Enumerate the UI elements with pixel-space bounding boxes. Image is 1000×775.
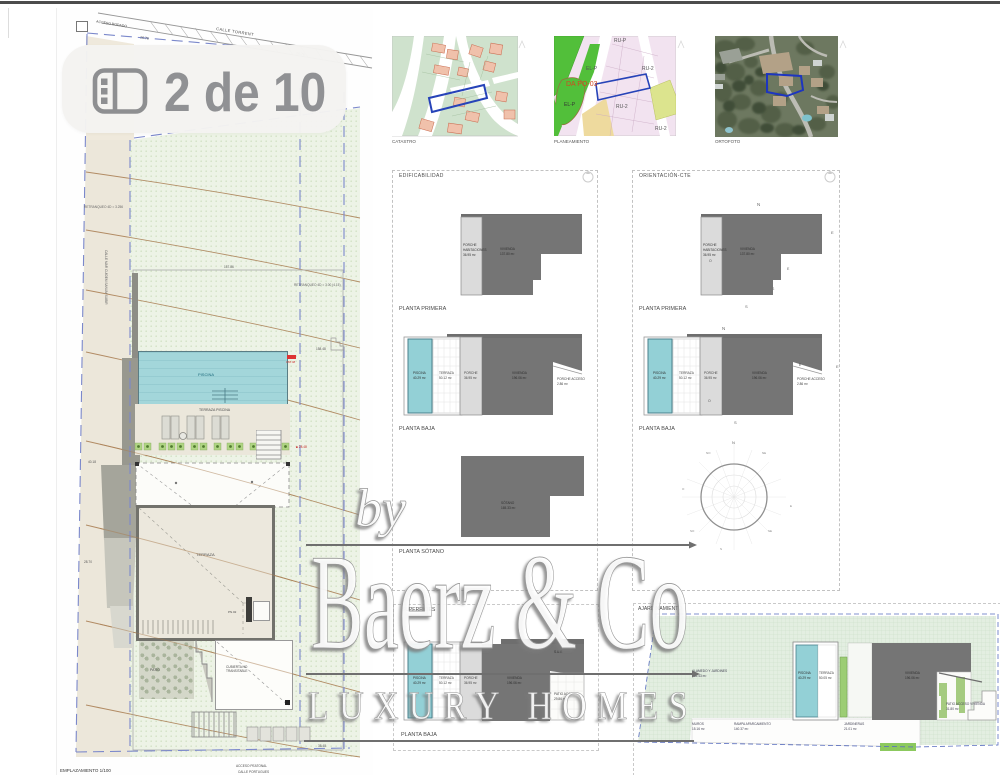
svg-text:S: S — [720, 547, 722, 551]
svg-text:PISCINA: PISCINA — [413, 371, 427, 375]
svg-text:TERRAZA: TERRAZA — [679, 371, 695, 375]
svg-text:PISCINA: PISCINA — [413, 676, 427, 680]
svg-text:SE: SE — [768, 529, 772, 533]
svg-text:NE: NE — [762, 451, 766, 455]
svg-text:JARDINERAS: JARDINERAS — [844, 722, 864, 726]
svg-text:40.29 m²: 40.29 m² — [413, 376, 426, 380]
svg-text:137.80 m²: 137.80 m² — [740, 252, 754, 256]
svg-text:PORCHE: PORCHE — [464, 676, 478, 680]
svg-text:VIVIENDA: VIVIENDA — [507, 676, 523, 680]
svg-text:15.16 m²: 15.16 m² — [692, 727, 705, 731]
svg-text:MUROS: MUROS — [692, 722, 704, 726]
svg-text:196.06 m²: 196.06 m² — [512, 376, 526, 380]
svg-text:29.86 m²: 29.86 m² — [554, 697, 567, 701]
svg-text:E: E — [836, 364, 839, 369]
svg-text:PISCINA: PISCINA — [653, 371, 667, 375]
svg-text:40.29 m²: 40.29 m² — [413, 681, 426, 685]
svg-text:36.95 m²: 36.95 m² — [703, 253, 716, 257]
svg-text:E: E — [790, 504, 792, 508]
svg-text:PORCHE: PORCHE — [463, 243, 477, 247]
svg-text:PORCHE ACCESO: PORCHE ACCESO — [797, 377, 825, 381]
svg-text:RAMPA APARCAMIENTO: RAMPA APARCAMIENTO — [734, 722, 771, 726]
svg-text:50.12 m²: 50.12 m² — [439, 681, 452, 685]
svg-text:40.29 m²: 40.29 m² — [798, 676, 811, 680]
svg-text:TERRAZA: TERRAZA — [439, 676, 455, 680]
svg-text:196.06 m²: 196.06 m² — [507, 681, 521, 685]
svg-text:S.U.E: S.U.E — [554, 650, 562, 654]
svg-text:137.80 m²: 137.80 m² — [500, 252, 514, 256]
svg-text:O: O — [709, 259, 712, 263]
svg-text:VIVIENDA: VIVIENDA — [905, 671, 921, 675]
svg-text:2.86 m²: 2.86 m² — [797, 382, 808, 386]
svg-text:O: O — [708, 399, 711, 403]
svg-text:36.95 m²: 36.95 m² — [704, 376, 717, 380]
svg-text:TERRAZA: TERRAZA — [819, 671, 835, 675]
svg-text:EL-P: EL-P — [586, 66, 598, 72]
svg-text:N: N — [757, 202, 760, 207]
svg-text:DA PO-03: DA PO-03 — [566, 81, 598, 88]
svg-text:50.12 m²: 50.12 m² — [679, 376, 692, 380]
svg-text:PATIO ACCESO VIVIENDA: PATIO ACCESO VIVIENDA — [946, 702, 986, 706]
svg-text:21.01 m²: 21.01 m² — [844, 727, 857, 731]
svg-text:VIVIENDA: VIVIENDA — [512, 371, 528, 375]
svg-text:36.95 m²: 36.95 m² — [464, 681, 477, 685]
svg-text:RU-P: RU-P — [614, 38, 627, 44]
svg-text:N: N — [722, 326, 725, 331]
svg-text:RU-2: RU-2 — [655, 126, 667, 132]
svg-text:140.37 m²: 140.37 m² — [734, 727, 748, 731]
svg-text:O: O — [682, 487, 685, 491]
svg-text:HABITACIONES: HABITACIONES — [703, 248, 727, 252]
svg-text:PISCINA: PISCINA — [798, 671, 812, 675]
svg-text:40.29 m²: 40.29 m² — [653, 376, 666, 380]
svg-text:36.95 m²: 36.95 m² — [463, 253, 476, 257]
svg-text:2.86 m²: 2.86 m² — [557, 382, 568, 386]
svg-text:31.80 m²: 31.80 m² — [946, 707, 959, 711]
svg-text:196.06 m²: 196.06 m² — [752, 376, 766, 380]
svg-text:SÓTANO: SÓTANO — [501, 500, 515, 505]
svg-text:EL-P: EL-P — [564, 102, 576, 108]
svg-text:196.06 m²: 196.06 m² — [905, 676, 919, 680]
svg-text:RU-2: RU-2 — [642, 66, 654, 72]
svg-text:36.95 m²: 36.95 m² — [464, 376, 477, 380]
svg-text:655.43 m²: 655.43 m² — [692, 674, 706, 678]
svg-text:VIVIENDA: VIVIENDA — [500, 247, 516, 251]
svg-text:E: E — [799, 363, 801, 367]
svg-text:E: E — [787, 267, 790, 271]
svg-text:E: E — [831, 230, 834, 235]
svg-text:VIVIENDA: VIVIENDA — [752, 371, 768, 375]
svg-text:PORCHE: PORCHE — [704, 371, 718, 375]
svg-text:S: S — [745, 304, 748, 309]
svg-text:50.05 m²: 50.05 m² — [819, 676, 832, 680]
svg-text:N: N — [732, 440, 735, 445]
svg-text:S: S — [734, 420, 737, 425]
svg-text:SO: SO — [690, 529, 695, 533]
svg-text:50.12 m²: 50.12 m² — [439, 376, 452, 380]
svg-text:PORCHE: PORCHE — [703, 243, 717, 247]
svg-text:PATIO ACC: PATIO ACC — [554, 692, 571, 696]
svg-text:TERRAZA: TERRAZA — [439, 371, 455, 375]
svg-text:VIVIENDA: VIVIENDA — [740, 247, 756, 251]
svg-text:PORCHE: PORCHE — [464, 371, 478, 375]
svg-text:RU-2: RU-2 — [616, 104, 628, 110]
svg-text:ALAMEDO Y JARDINES: ALAMEDO Y JARDINES — [692, 669, 727, 673]
svg-text:PORCHE ACCESO: PORCHE ACCESO — [557, 377, 585, 381]
svg-text:165.33 m²: 165.33 m² — [501, 506, 515, 510]
svg-text:HABITACIONES: HABITACIONES — [463, 248, 487, 252]
svg-text:NO: NO — [706, 451, 711, 455]
